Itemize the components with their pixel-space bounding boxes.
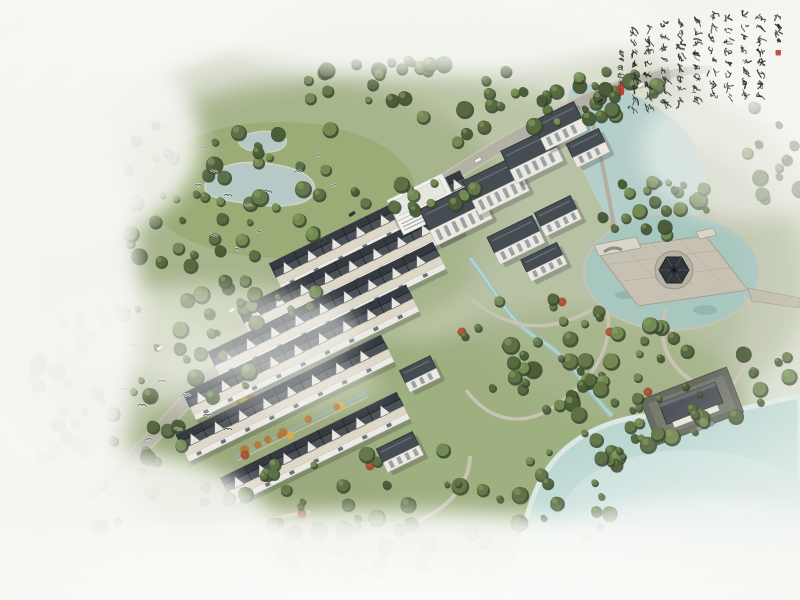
- aerial-rendering: architectural aerial rendering: [0, 0, 800, 600]
- calligraphy-stroke: [682, 31, 683, 34]
- seal-stamp: [618, 84, 624, 95]
- rendering-scene: architectural aerial rendering: [0, 0, 800, 600]
- vignette: [0, 0, 800, 600]
- calligraphy-stroke: [725, 15, 726, 21]
- seal-stamp: [776, 50, 782, 56]
- calligraphy-stroke: [645, 62, 646, 66]
